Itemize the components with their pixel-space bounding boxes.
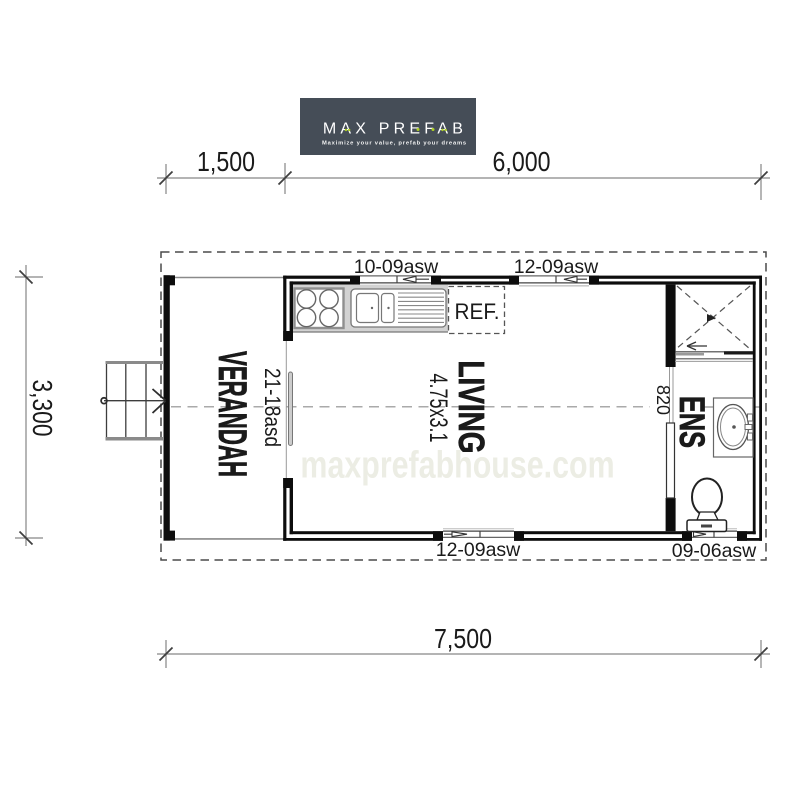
svg-text:6,000: 6,000 bbox=[493, 146, 551, 177]
svg-text:Maximize your value, prefab yo: Maximize your value, prefab your dreams bbox=[322, 141, 467, 147]
svg-text:3,300: 3,300 bbox=[27, 380, 58, 437]
svg-text:LIVING: LIVING bbox=[451, 361, 492, 454]
svg-text:1,500: 1,500 bbox=[197, 146, 255, 177]
svg-text:4.75x3.1: 4.75x3.1 bbox=[424, 374, 452, 443]
svg-text:VERANDAH: VERANDAH bbox=[210, 351, 254, 477]
svg-text:12-09asw: 12-09asw bbox=[436, 539, 521, 561]
svg-text:10-09asw: 10-09asw bbox=[354, 256, 439, 278]
svg-text:820: 820 bbox=[653, 385, 673, 415]
svg-text:09-06asw: 09-06asw bbox=[672, 540, 757, 562]
svg-text:7,500: 7,500 bbox=[434, 623, 492, 654]
svg-text:12-09asw: 12-09asw bbox=[514, 256, 599, 278]
svg-text:21-18asd: 21-18asd bbox=[260, 368, 285, 447]
svg-text:ENS: ENS bbox=[672, 396, 711, 448]
svg-text:REF.: REF. bbox=[455, 299, 500, 324]
